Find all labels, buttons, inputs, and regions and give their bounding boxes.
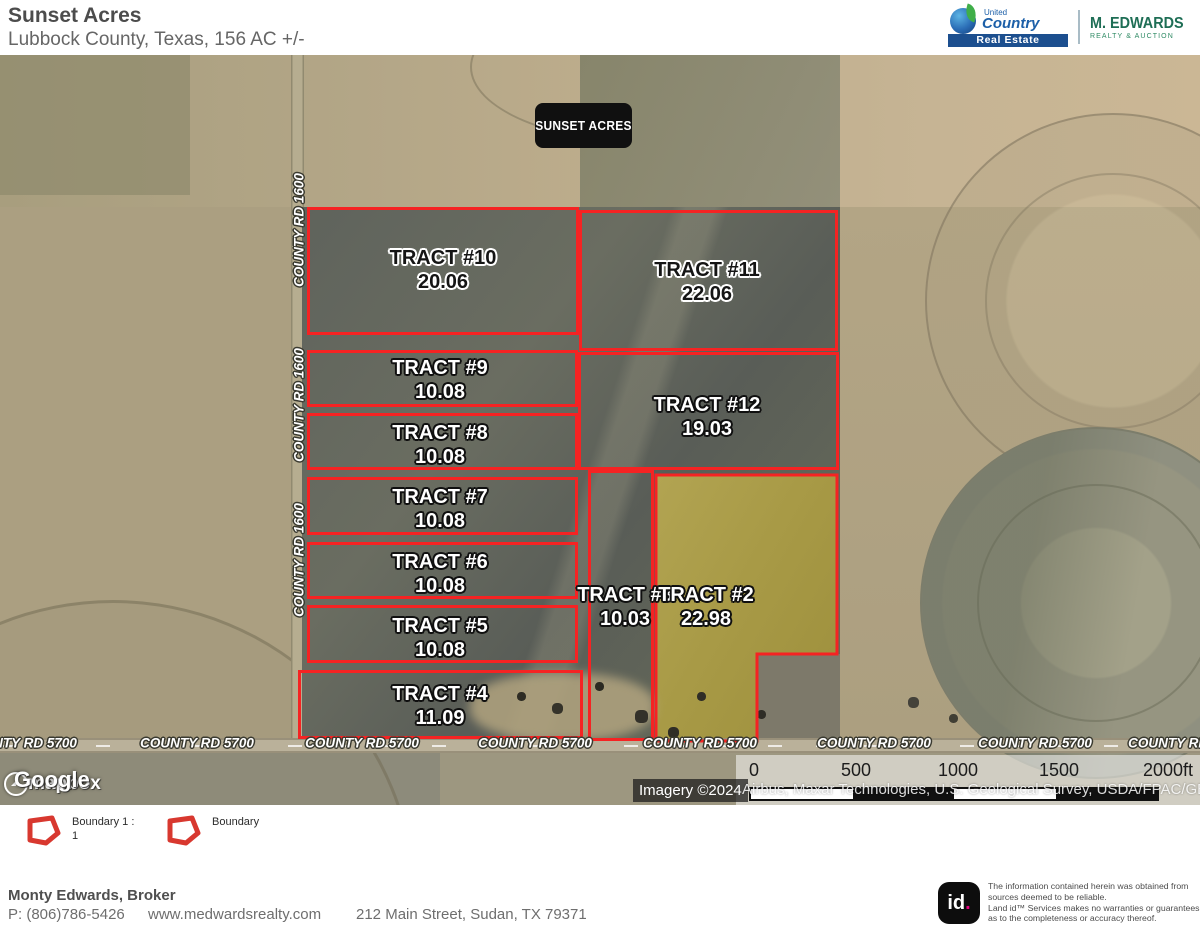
tract-6-label: TRACT #610.08 bbox=[392, 550, 488, 598]
imagery-attribution-prefix: Imagery ©2024 bbox=[633, 779, 748, 802]
page-subtitle: Lubbock County, Texas, 156 AC +/- bbox=[8, 29, 305, 51]
disclaimer: The information contained herein was obt… bbox=[988, 881, 1200, 924]
medwards-tagline: REALTY & AUCTION bbox=[1090, 33, 1194, 40]
broker-address: 212 Main Street, Sudan, TX 79371 bbox=[356, 906, 587, 923]
road-label-5700: COUNTY RD 5700 bbox=[643, 736, 757, 751]
tract-9-label: TRACT #910.08 bbox=[392, 356, 488, 404]
footer: Monty Edwards, Broker P: (806)786-5426 w… bbox=[0, 875, 1200, 928]
tract-7-label: TRACT #710.08 bbox=[392, 485, 488, 533]
legend-label: Boundary bbox=[212, 815, 259, 829]
broker-website[interactable]: www.medwardsrealty.com bbox=[148, 906, 321, 923]
tract-5-label: TRACT #510.08 bbox=[392, 614, 488, 662]
broker-name: Monty Edwards, Broker bbox=[8, 887, 176, 904]
road-label-1600: COUNTY RD 1600 bbox=[292, 503, 307, 617]
field-notch bbox=[757, 654, 840, 742]
road-label-5700: COUNTY RD 5700 bbox=[0, 736, 77, 751]
page: Sunset Acres Lubbock County, Texas, 156 … bbox=[0, 0, 1200, 928]
field-patch-topleft bbox=[0, 55, 190, 195]
medwards-logo: M. EDWARDS REALTY & AUCTION bbox=[1090, 15, 1194, 40]
place-label: SUNSET ACRES bbox=[535, 118, 632, 133]
boundary-polygon-icon bbox=[162, 815, 202, 847]
uc-country-text: Country bbox=[982, 15, 1040, 32]
tract-4-label: TRACT #411.09 bbox=[392, 682, 488, 730]
tree-specks bbox=[0, 55, 3, 58]
scale-tick: 500 bbox=[841, 760, 871, 781]
disclaimer-line: The information contained herein was obt… bbox=[988, 881, 1200, 892]
map-canvas[interactable]: TRACT #1020.06 TRACT #1122.06 TRACT #910… bbox=[0, 55, 1200, 805]
united-country-logo: United Country Real Estate bbox=[948, 7, 1068, 47]
imagery-attribution-sources: Airbus, Maxar Technologies, U.S. Geologi… bbox=[742, 781, 1200, 798]
legend-item-boundary: Boundary bbox=[162, 815, 259, 847]
disclaimer-line: as to the completeness or accuracy there… bbox=[988, 913, 1200, 924]
logo-group: United Country Real Estate M. EDWARDS RE… bbox=[948, 7, 1194, 47]
boundary-polygon-icon bbox=[22, 815, 62, 847]
broker-phone: P: (806)786-5426 bbox=[8, 906, 125, 923]
road-label-5700: COUNTY RD 5700 bbox=[817, 736, 931, 751]
tract-10-label: TRACT #1020.06 bbox=[390, 246, 497, 294]
map-provider-logos: mapbox Google bbox=[4, 757, 154, 803]
legend: Boundary 1 : 1 Boundary bbox=[0, 805, 1200, 875]
legend-label: Boundary 1 : 1 bbox=[72, 815, 136, 843]
disclaimer-line: Land id™ Services makes no warranties or… bbox=[988, 903, 1200, 914]
google-logo[interactable]: Google bbox=[14, 767, 90, 793]
scale-tick: 2000ft bbox=[1143, 760, 1193, 781]
tract-11-label: TRACT #1122.06 bbox=[654, 258, 760, 306]
scale-tick: 1000 bbox=[938, 760, 978, 781]
place-label-pill: SUNSET ACRES bbox=[535, 103, 632, 148]
disclaimer-line: sources deemed to be reliable. bbox=[988, 892, 1200, 903]
legend-item-boundary-1: Boundary 1 : 1 bbox=[22, 815, 136, 847]
road-label-5700: COUNTY RD 5700 bbox=[478, 736, 592, 751]
landid-logo: id. bbox=[938, 882, 980, 924]
road-label-1600: COUNTY RD 1600 bbox=[292, 348, 307, 462]
tract-2-label: TRACT #222.98 bbox=[658, 583, 754, 631]
header: Sunset Acres Lubbock County, Texas, 156 … bbox=[0, 0, 1200, 55]
scale-tick: 0 bbox=[749, 760, 759, 781]
tract-8-label: TRACT #810.08 bbox=[392, 421, 488, 469]
page-title: Sunset Acres bbox=[8, 4, 141, 28]
road-label-5700: COUNTY RD 5700 bbox=[140, 736, 254, 751]
road-label-5700: COUNTY RD 5700 bbox=[1128, 736, 1200, 751]
road-label-5700: COUNTY RD 5700 bbox=[978, 736, 1092, 751]
road-label-1600: COUNTY RD 1600 bbox=[292, 173, 307, 287]
uc-real-estate-bar: Real Estate bbox=[948, 34, 1068, 47]
road-label-5700: COUNTY RD 5700 bbox=[305, 736, 419, 751]
scale-tick: 1500 bbox=[1039, 760, 1079, 781]
medwards-name: M. EDWARDS bbox=[1090, 15, 1184, 33]
logo-divider bbox=[1078, 10, 1080, 44]
tract-12-label: TRACT #1219.03 bbox=[654, 393, 761, 441]
